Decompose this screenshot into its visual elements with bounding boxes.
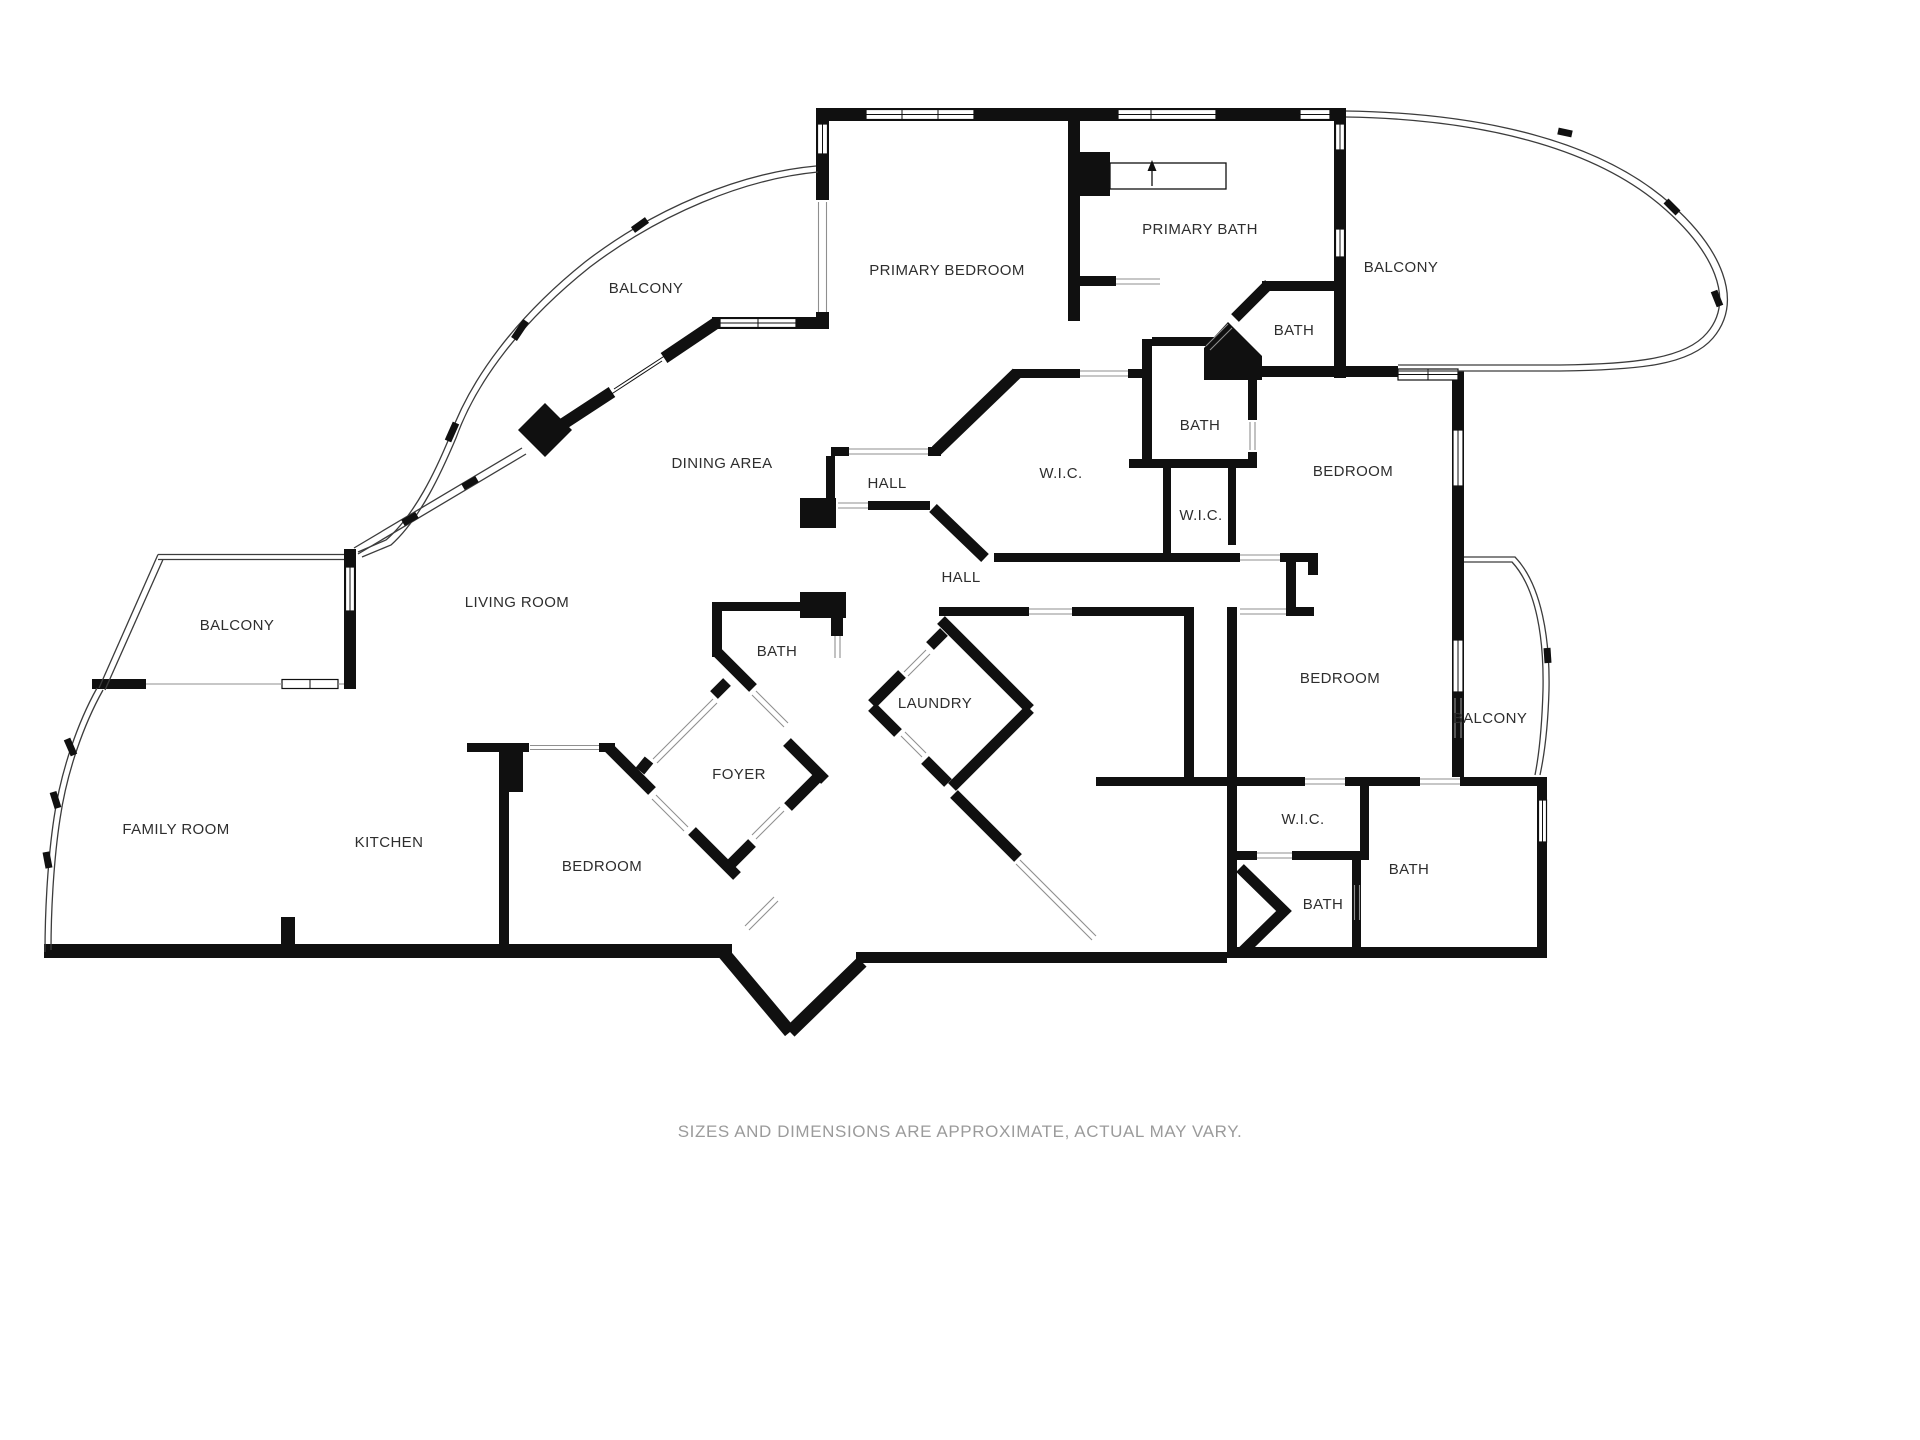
rail-tick (448, 423, 456, 441)
rail-tick (46, 852, 49, 868)
closet-door-chevron (1240, 868, 1284, 954)
vanity-counter (1110, 163, 1226, 189)
room-label-bedroom-bottom-center: BEDROOM (562, 858, 642, 875)
room-label-bedroom-upper-right: BEDROOM (1313, 463, 1393, 480)
room-label-family-room: FAMILY ROOM (122, 821, 229, 838)
room-label-living-room: LIVING ROOM (465, 594, 569, 611)
room-label-bath-middle: BATH (1180, 417, 1221, 434)
room-label-bath-primary-suite: BATH (1274, 322, 1315, 339)
fixtures (1110, 160, 1226, 189)
rail-tick (1547, 648, 1548, 663)
room-label-hall-upper: HALL (867, 475, 906, 492)
rail-tick (633, 220, 647, 230)
rail-tick (403, 515, 417, 523)
room-label-primary-bedroom: PRIMARY BEDROOM (869, 262, 1024, 279)
room-label-wic-large: W.I.C. (1039, 465, 1082, 482)
room-label-foyer: FOYER (712, 766, 766, 783)
room-label-bath-lower-right-east: BATH (1389, 861, 1430, 878)
floor-plan-svg: BALCONY PRIMARY BEDROOM PRIMARY BATH BAL… (0, 0, 1920, 1440)
room-label-balcony-left: BALCONY (200, 617, 275, 634)
room-label-laundry: LAUNDRY (898, 695, 972, 712)
room-label-balcony-lower-right: BALCONY (1453, 710, 1528, 727)
walls (44, 108, 1547, 1032)
room-label-wic-lower-right: W.I.C. (1281, 811, 1324, 828)
room-label-primary-bath: PRIMARY BATH (1142, 221, 1258, 238)
room-label-bath-lower-right-south: BATH (1303, 896, 1344, 913)
room-label-kitchen: KITCHEN (355, 834, 424, 851)
balcony-rails (45, 111, 1727, 952)
rail-tick (1558, 131, 1572, 134)
room-label-balcony-top-left: BALCONY (609, 280, 684, 297)
room-label-hall-lower: HALL (941, 569, 980, 586)
room-label-balcony-top-right: BALCONY (1364, 259, 1439, 276)
room-label-wic-small: W.I.C. (1179, 507, 1222, 524)
room-label-bedroom-lower-right: BEDROOM (1300, 670, 1380, 687)
floor-plan-page: BALCONY PRIMARY BEDROOM PRIMARY BATH BAL… (0, 0, 1920, 1440)
room-label-bath-center: BATH (757, 643, 798, 660)
rail-tick (53, 792, 58, 808)
rail-tick (463, 479, 477, 487)
room-label-dining-area: DINING AREA (671, 455, 772, 472)
disclaimer-text: SIZES AND DIMENSIONS ARE APPROXIMATE, AC… (0, 1122, 1920, 1142)
rail-tick (514, 321, 526, 339)
